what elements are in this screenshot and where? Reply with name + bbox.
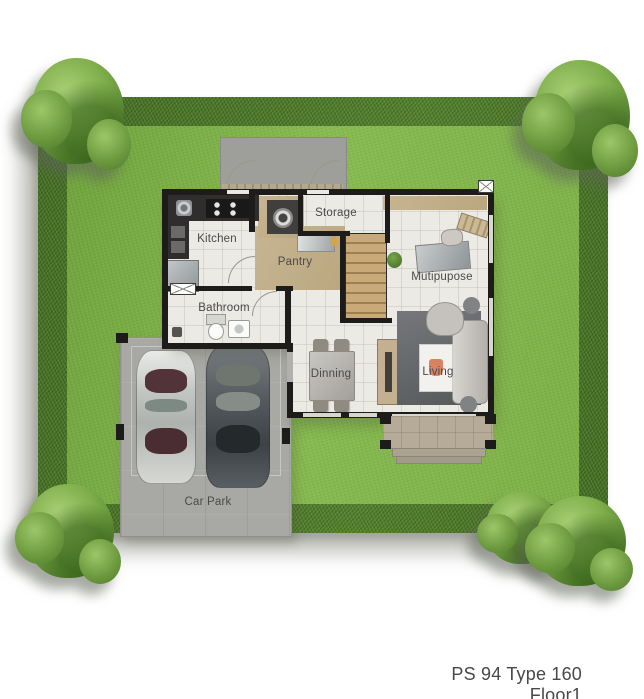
wall [340,231,345,323]
car-silver [136,350,196,484]
storage-label: Storage [305,207,367,219]
car-windshield [145,369,187,393]
pantry-label: Pantry [266,256,324,268]
car-roof [216,392,261,412]
cabinet-door [385,352,392,392]
ottoman-icon [460,396,477,413]
tree [534,60,630,170]
ac-unit-icon [478,180,494,193]
washer-drum-icon [273,208,293,228]
living-label: Living [410,366,466,378]
desk [415,241,471,274]
wall [162,189,168,349]
door-opening [227,190,249,194]
stairs [345,233,387,323]
sink-icon [176,200,192,216]
door-opening [307,190,329,194]
washbasin-icon [228,320,250,338]
wall [485,414,496,424]
car-dark [206,346,270,488]
wall [116,424,124,440]
wall [285,288,291,346]
kettle-icon [331,237,337,246]
toilet-icon [208,323,224,340]
car-rear-window [216,425,261,453]
window-icon [489,298,493,356]
wall [340,318,392,323]
floor-plan: Car Park Dinning [0,0,644,699]
window-icon [303,413,341,417]
armchair [426,302,464,336]
floor-drain-icon [172,327,182,337]
washing-machine-icon [267,200,299,234]
counter-appliance-icon [171,241,185,253]
window-icon [349,413,377,417]
carpark-label: Car Park [150,496,266,508]
wall [282,428,290,444]
tree [536,496,626,586]
dinning-label: Dinning [300,368,362,380]
tree [32,58,124,164]
mutipupose-label: Mutipupose [404,271,480,283]
wall [385,192,390,243]
bathroom-label: Bathroom [194,302,254,314]
wall [116,333,128,343]
counter-appliance-icon [171,226,185,238]
car-roof [145,399,187,412]
kitchen-label: Kitchen [191,233,243,245]
car-windshield [216,364,261,386]
wall [485,440,496,449]
pantry-counter [297,234,335,252]
stove-icon [206,199,250,218]
wall [380,414,391,424]
entry-door [287,352,293,382]
plan-title: PS 94 Type 160 Floor1 [396,664,582,699]
window-icon [489,215,493,263]
wall [162,343,293,349]
tree [26,484,114,578]
porch [383,416,493,448]
car-rear-window [145,428,187,454]
sideboard-strip [383,196,487,210]
plant-icon [387,252,402,268]
ottoman-icon [463,297,480,314]
wall [380,440,391,449]
porch-steps [396,456,482,464]
wall [249,192,255,232]
window-icon [170,283,196,295]
wall [298,192,303,236]
